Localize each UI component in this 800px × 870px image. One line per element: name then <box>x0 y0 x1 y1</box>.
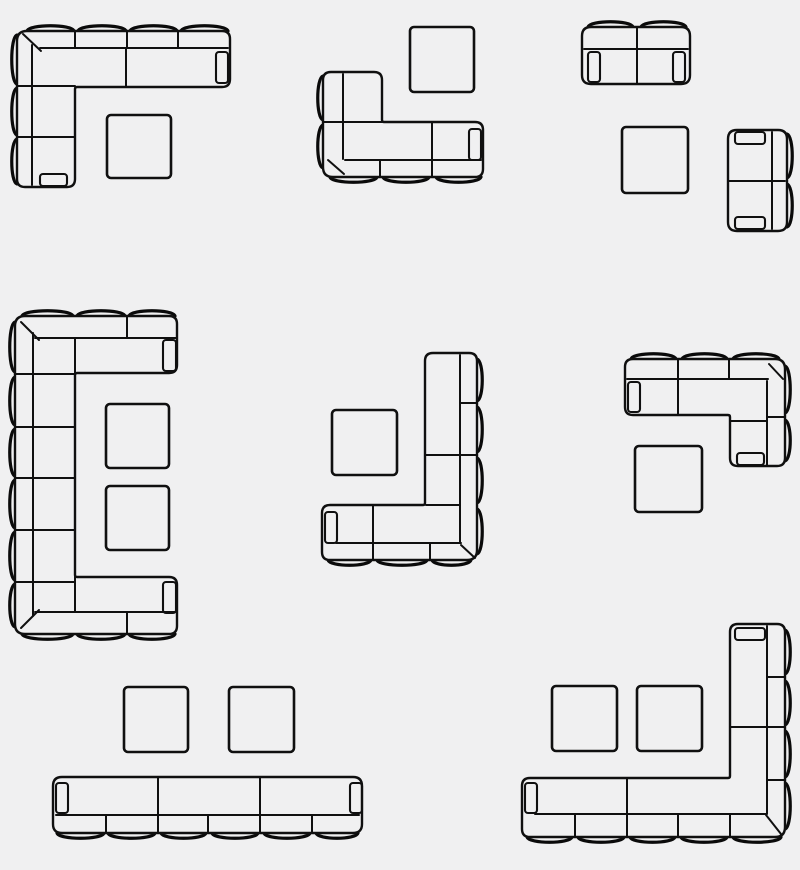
coffee-table[interactable] <box>332 410 397 475</box>
sofa-set-middle-left <box>10 311 177 640</box>
sofa-set-bottom-right <box>522 624 790 842</box>
sofa-set-middle-right <box>625 354 790 512</box>
u-shaped-sectional-sofa[interactable] <box>10 311 177 640</box>
coffee-table[interactable] <box>106 404 169 468</box>
coffee-table[interactable] <box>410 27 474 92</box>
coffee-table[interactable] <box>637 686 702 751</box>
loveseat-sofa[interactable] <box>582 22 690 84</box>
coffee-table[interactable] <box>107 115 171 178</box>
sofa-set-middle-center <box>322 353 482 565</box>
coffee-table[interactable] <box>552 686 617 751</box>
straight-sectional-sofa[interactable] <box>53 777 362 838</box>
floor-plan-canvas <box>0 0 800 870</box>
sofa-set-top-left <box>12 26 230 187</box>
furniture-floor-plan <box>0 0 800 870</box>
sofa-set-bottom-left <box>53 687 362 838</box>
loveseat-sofa-vertical[interactable] <box>728 130 792 231</box>
coffee-table[interactable] <box>229 687 294 752</box>
sofa-set-top-middle <box>318 27 483 182</box>
coffee-table[interactable] <box>622 127 688 193</box>
coffee-table[interactable] <box>124 687 188 752</box>
coffee-table[interactable] <box>106 486 169 550</box>
coffee-table[interactable] <box>635 446 702 512</box>
sofa-set-top-right <box>582 22 792 231</box>
sofa-outline <box>15 316 177 634</box>
